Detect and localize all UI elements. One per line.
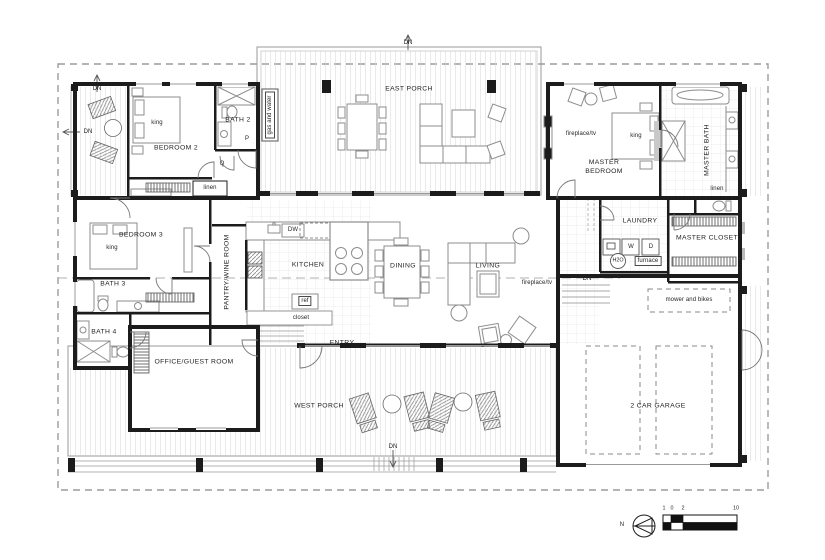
north-arrow xyxy=(633,515,655,537)
floor-plan-sheet: DN EAST PORCH gas and water DN DN king B… xyxy=(0,0,825,560)
living-furniture xyxy=(448,228,536,347)
garage-markings xyxy=(586,289,730,454)
master-closet-fixtures xyxy=(672,217,745,266)
bedroom2-furniture xyxy=(131,87,255,196)
dining-furniture xyxy=(375,238,429,306)
scale-bar xyxy=(663,515,737,530)
floor-plan-drawing xyxy=(0,0,825,560)
